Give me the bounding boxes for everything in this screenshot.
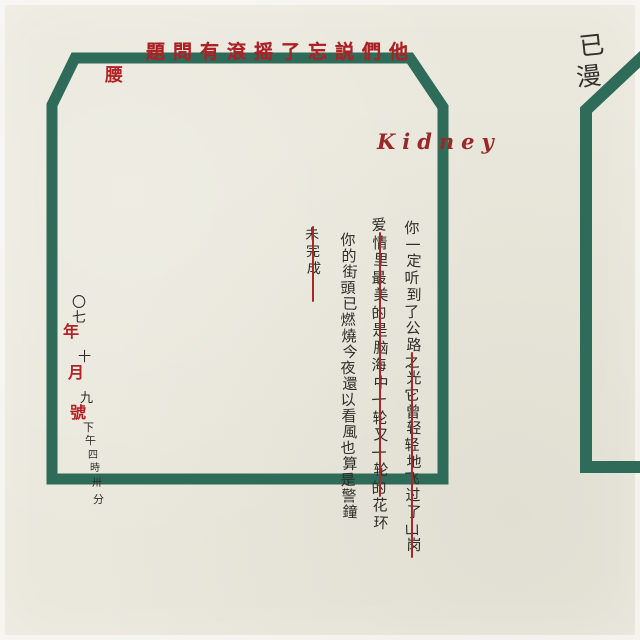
date-column: 〇七年十月九號下午四時卅分 <box>0 0 640 640</box>
date-form-char: 號 <box>70 405 86 421</box>
date-handwritten-char: 下 <box>83 422 94 433</box>
date-form-char: 月 <box>68 365 84 381</box>
date-handwritten-char: 時 <box>90 464 100 474</box>
date-handwritten-char: 分 <box>93 494 104 505</box>
date-handwritten-char: 卅 <box>92 479 102 489</box>
date-form-char: 年 <box>63 324 79 340</box>
date-handwritten-char: 四 <box>88 451 98 461</box>
album-art-canvas: 題問有滾摇了忘説們他 腰 Kidney 已漫 你一定听到了公路之光它曾轻轻地飞过… <box>0 0 640 640</box>
date-handwritten-char: 午 <box>85 435 96 446</box>
date-handwritten-char: 〇 <box>72 296 86 310</box>
